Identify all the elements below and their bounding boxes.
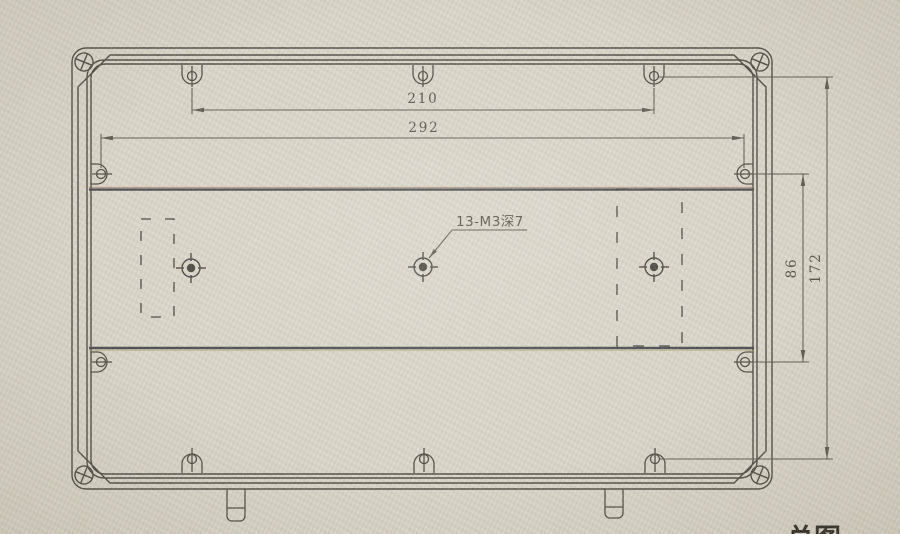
scanned-drawing-page: 13-M3深7 210 292 86 (0, 0, 900, 534)
paper-grain-texture (0, 0, 900, 534)
technical-drawing: 13-M3深7 210 292 86 (0, 0, 900, 534)
